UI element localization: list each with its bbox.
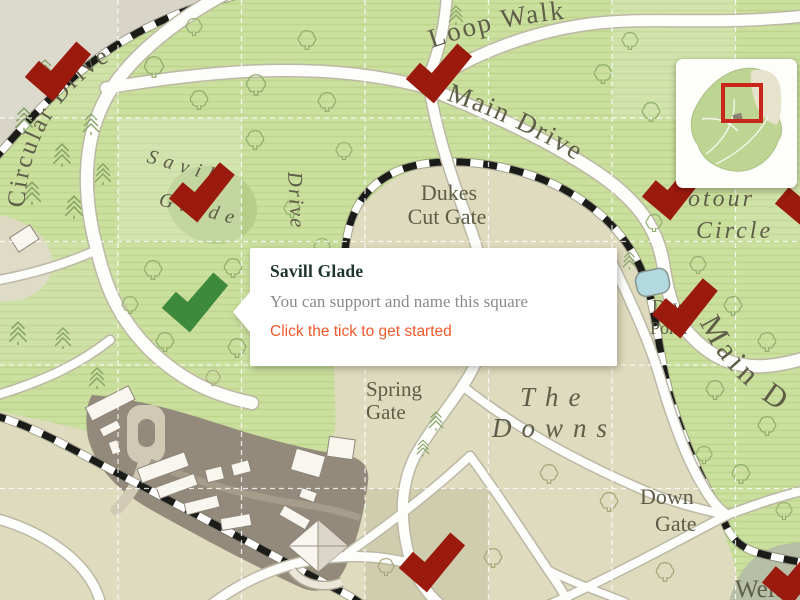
map-label-cut-gate: Cut Gate [408, 204, 487, 229]
map-label-spring: Spring [366, 377, 423, 401]
map-label-dukes: Dukes [421, 180, 477, 205]
minimap[interactable] [676, 59, 797, 188]
popup-title: Savill Glade [270, 261, 599, 282]
popup-cta-link[interactable]: Click the tick to get started [270, 323, 452, 340]
square-info-popup: Savill Glade You can support and name th… [250, 248, 617, 366]
map-label-drive: Drive [283, 170, 310, 230]
map-label-down: Down [640, 484, 694, 509]
map-app: Circular Drive Loop Walk Main Drive Main… [0, 0, 800, 600]
map-label-downs: Downs [491, 413, 617, 443]
map-label-circle-1: otour [688, 186, 755, 212]
popup-arrow [233, 292, 250, 332]
map-label-down-gate: Gate [655, 511, 697, 536]
map-label-spring-gate: Gate [366, 400, 406, 424]
map-label-circle-2: Circle [696, 218, 773, 244]
popup-description: You can support and name this square [270, 292, 599, 312]
map-label-the: The [520, 382, 591, 412]
